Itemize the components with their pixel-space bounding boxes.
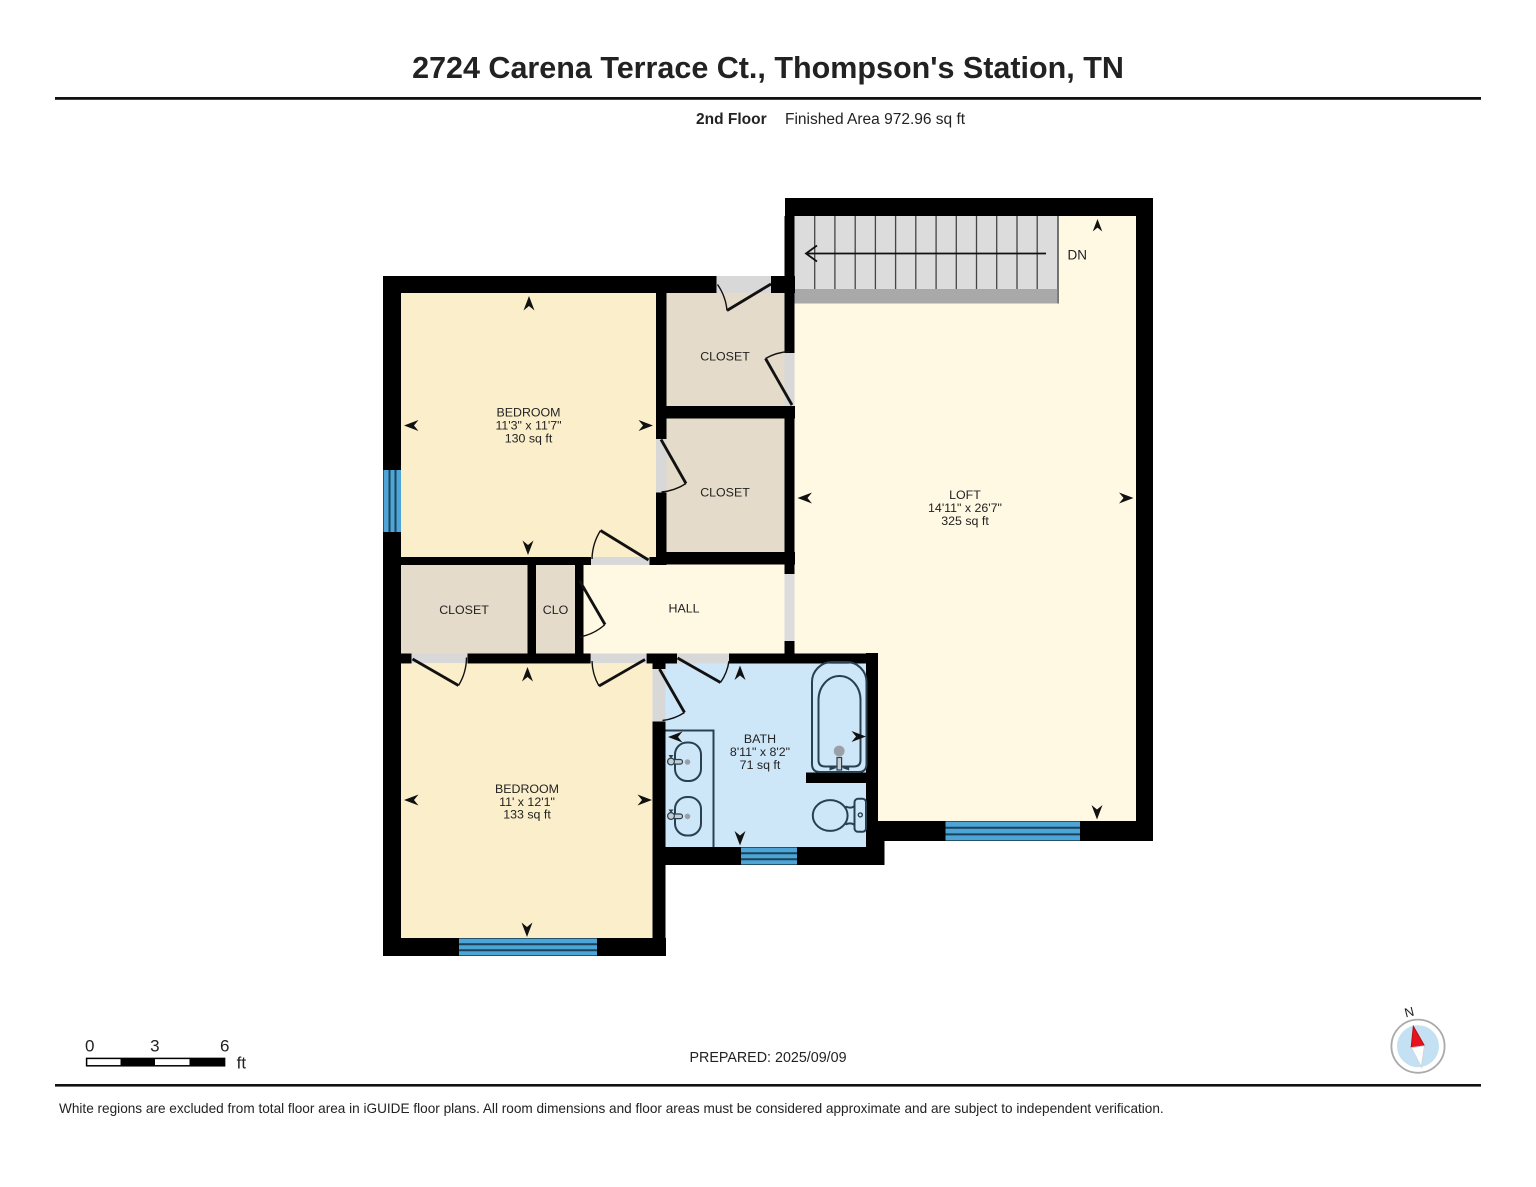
svg-text:PREPARED: 2025/09/09: PREPARED: 2025/09/09 <box>689 1050 846 1066</box>
svg-text:11'3" x 11'7": 11'3" x 11'7" <box>495 419 561 433</box>
svg-text:325 sq ft: 325 sq ft <box>941 514 989 528</box>
svg-text:0: 0 <box>85 1037 94 1056</box>
svg-text:CLO: CLO <box>543 603 569 617</box>
svg-text:3: 3 <box>150 1037 159 1056</box>
svg-text:ft: ft <box>237 1054 247 1073</box>
svg-text:LOFT: LOFT <box>949 488 981 502</box>
svg-text:CLOSET: CLOSET <box>700 486 750 500</box>
svg-text:8'11" x 8'2": 8'11" x 8'2" <box>730 745 790 759</box>
svg-text:11' x 12'1": 11' x 12'1" <box>499 795 555 809</box>
svg-text:BATH: BATH <box>744 732 776 746</box>
svg-text:BEDROOM: BEDROOM <box>496 406 560 420</box>
svg-text:CLOSET: CLOSET <box>700 350 750 364</box>
svg-text:CLOSET: CLOSET <box>439 603 489 617</box>
svg-text:133 sq ft: 133 sq ft <box>503 808 551 822</box>
svg-text:DN: DN <box>1068 248 1088 263</box>
svg-text:71 sq ft: 71 sq ft <box>740 758 781 772</box>
svg-text:130 sq ft: 130 sq ft <box>505 431 553 445</box>
svg-text:14'11" x 26'7": 14'11" x 26'7" <box>928 501 1002 515</box>
svg-text:2724 Carena Terrace Ct., Thomp: 2724 Carena Terrace Ct., Thompson's Stat… <box>412 51 1124 85</box>
svg-text:White regions are excluded fro: White regions are excluded from total fl… <box>59 1101 1164 1116</box>
svg-text:Finished Area 972.96 sq ft: Finished Area 972.96 sq ft <box>785 111 966 128</box>
svg-text:6: 6 <box>220 1037 229 1056</box>
svg-text:HALL: HALL <box>669 602 700 616</box>
svg-text:BEDROOM: BEDROOM <box>495 782 559 796</box>
svg-text:2nd Floor: 2nd Floor <box>696 111 767 128</box>
